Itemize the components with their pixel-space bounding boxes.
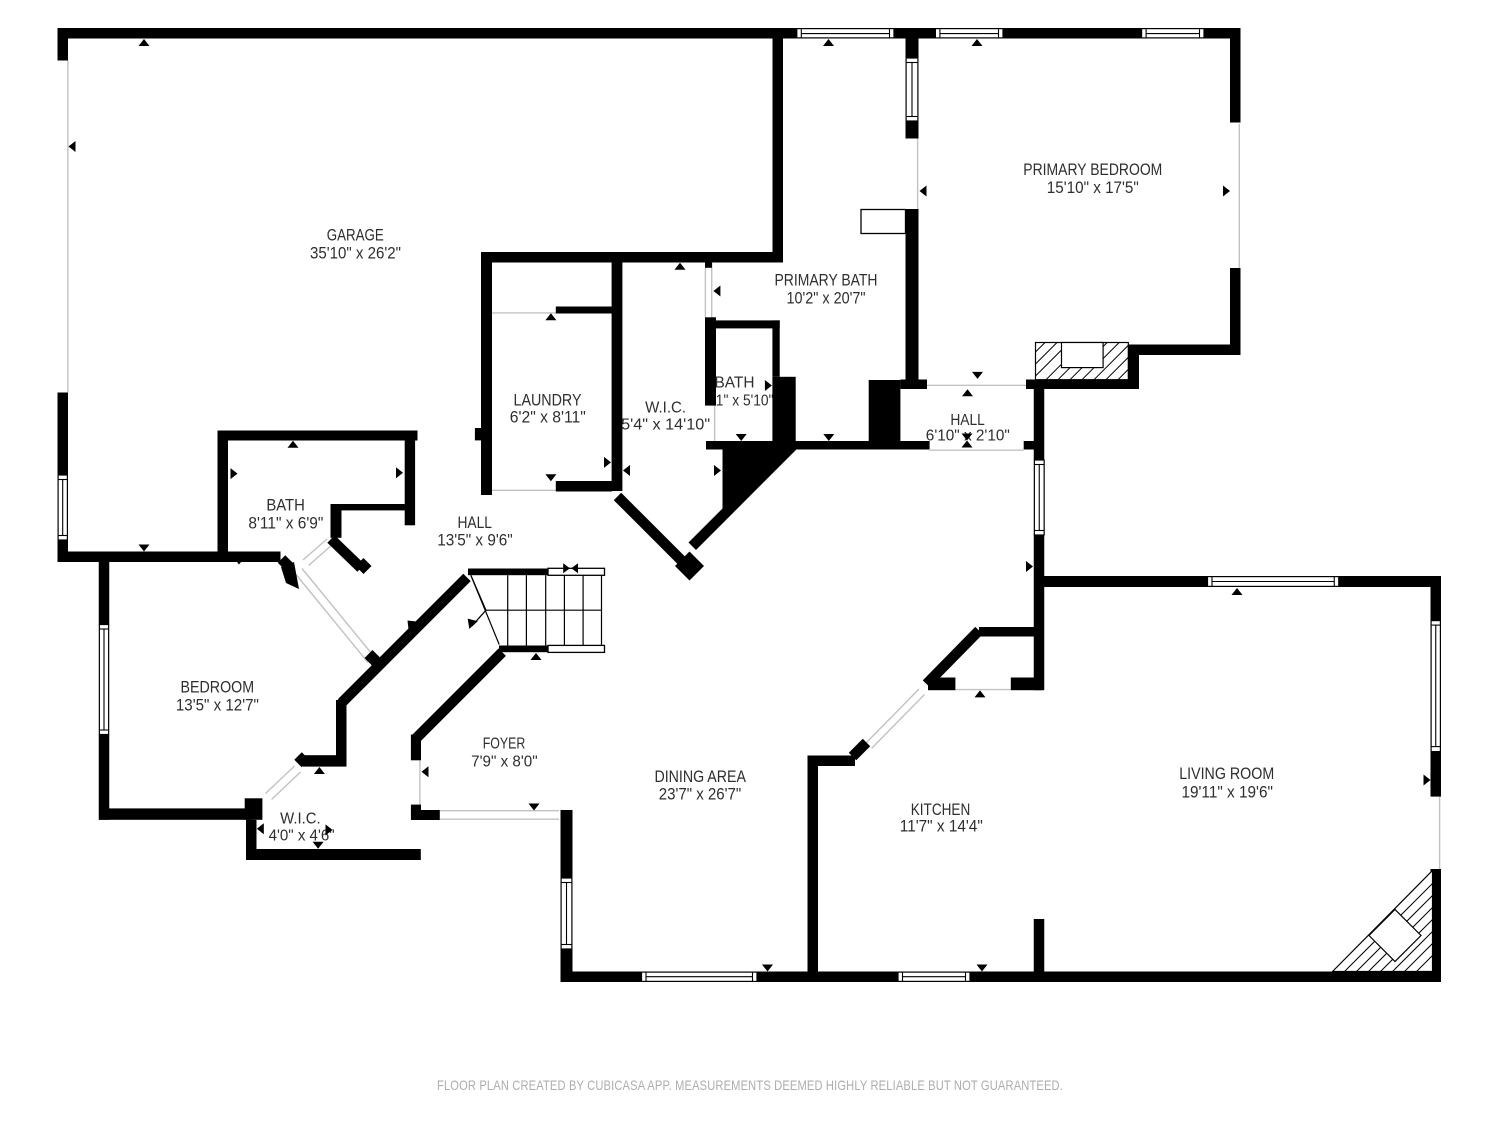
svg-text:BATH: BATH (266, 497, 305, 515)
svg-text:GARAGE: GARAGE (327, 227, 384, 245)
svg-text:19'11" x 19'6": 19'11" x 19'6" (1181, 784, 1273, 802)
svg-text:DINING AREA: DINING AREA (654, 768, 746, 786)
svg-text:8'11" x 6'9": 8'11" x 6'9" (248, 514, 323, 532)
svg-text:FLOOR PLAN CREATED BY CUBICASA: FLOOR PLAN CREATED BY CUBICASA APP. MEAS… (437, 1078, 1063, 1093)
svg-text:PRIMARY BATH: PRIMARY BATH (775, 272, 878, 290)
svg-text:13'5" x 9'6": 13'5" x 9'6" (437, 532, 513, 550)
svg-text:PRIMARY BEDROOM: PRIMARY BEDROOM (1023, 161, 1162, 179)
svg-text:13'5" x 12'7": 13'5" x 12'7" (176, 697, 259, 715)
svg-text:HALL: HALL (950, 412, 985, 429)
svg-text:5'4" x 14'10": 5'4" x 14'10" (621, 417, 710, 434)
svg-text:6'2" x 8'11": 6'2" x 8'11" (510, 409, 586, 427)
svg-text:W.I.C.: W.I.C. (280, 811, 321, 828)
svg-text:BATH: BATH (715, 375, 755, 392)
svg-text:LAUNDRY: LAUNDRY (514, 392, 582, 410)
svg-text:W.I.C.: W.I.C. (645, 400, 686, 417)
svg-text:10'2" x 20'7": 10'2" x 20'7" (787, 290, 866, 308)
svg-text:KITCHEN: KITCHEN (911, 801, 971, 819)
svg-text:35'10" x 26'2": 35'10" x 26'2" (310, 245, 401, 263)
svg-text:BEDROOM: BEDROOM (181, 679, 255, 697)
svg-text:11'7" x 14'4": 11'7" x 14'4" (900, 818, 983, 836)
svg-text:15'10" x 17'5": 15'10" x 17'5" (1047, 179, 1139, 197)
svg-text:FOYER: FOYER (483, 735, 526, 752)
svg-text:23'7" x 26'7": 23'7" x 26'7" (659, 786, 742, 804)
svg-text:4'0" x 4'6": 4'0" x 4'6" (269, 828, 335, 845)
svg-text:HALL: HALL (457, 514, 492, 532)
svg-text:LIVING ROOM: LIVING ROOM (1179, 765, 1274, 783)
svg-text:7'9" x 8'0": 7'9" x 8'0" (471, 754, 538, 771)
